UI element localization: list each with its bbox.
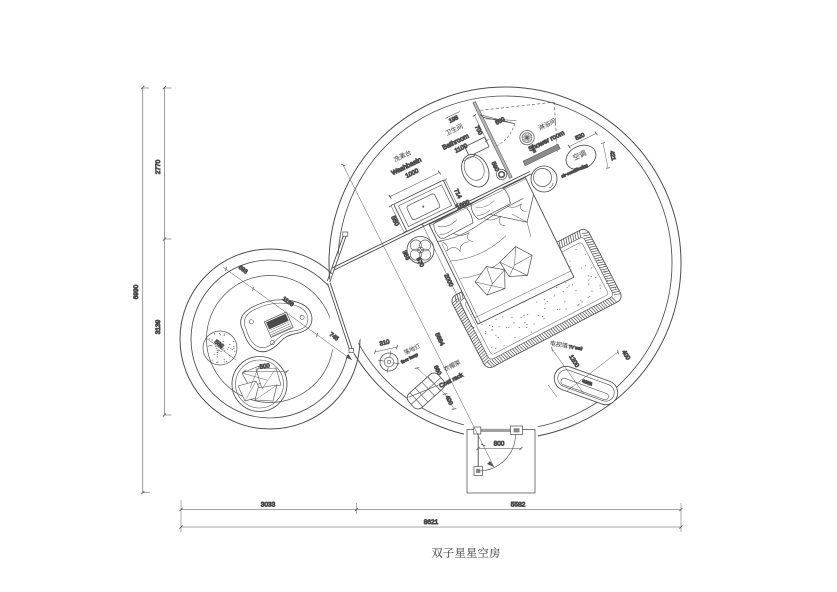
svg-text:2770: 2770 bbox=[155, 159, 162, 174]
svg-text:8621: 8621 bbox=[424, 519, 439, 526]
svg-text:800: 800 bbox=[494, 441, 505, 448]
svg-text:3033: 3033 bbox=[261, 502, 276, 509]
svg-text:5582: 5582 bbox=[511, 502, 526, 509]
svg-text:6990: 6990 bbox=[133, 284, 140, 299]
svg-text:3139: 3139 bbox=[155, 319, 162, 334]
